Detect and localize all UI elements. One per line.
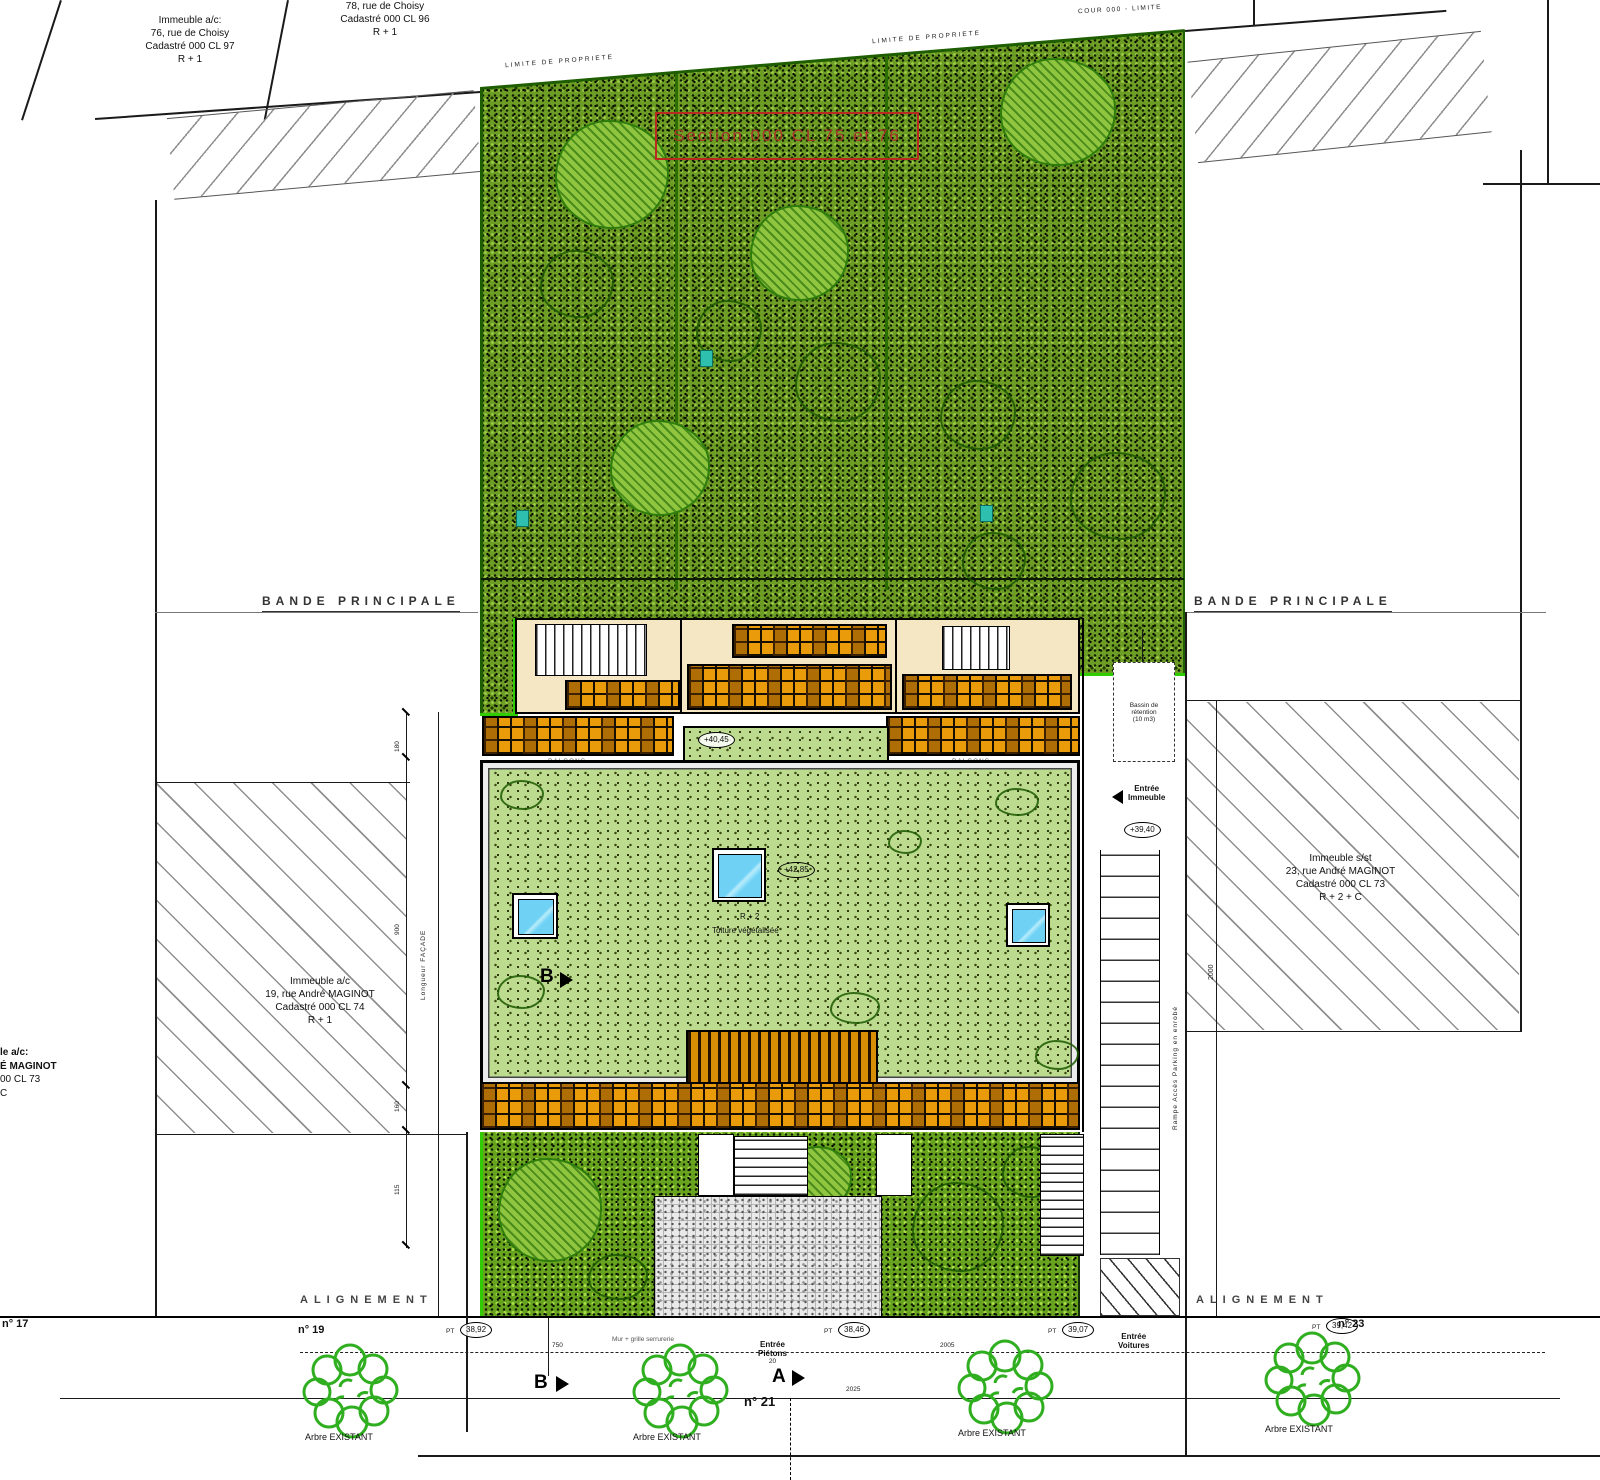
street-line	[418, 1455, 1600, 1457]
shrub-mark	[700, 350, 713, 367]
dim-value: 900	[394, 924, 401, 935]
planter-outline	[1035, 1040, 1079, 1070]
arbre-existant-label: Arbre EXISTANT	[633, 1432, 701, 1442]
hatched-strip	[167, 90, 481, 200]
cour-boundary-label: COUR 000 - LIMITE	[1078, 4, 1162, 15]
skylight-icon	[712, 848, 766, 902]
pergola-slats	[686, 1030, 878, 1084]
boundary-line	[155, 782, 410, 783]
arbre-existant-label: Arbre EXISTANT	[1265, 1424, 1333, 1434]
boundary-line	[155, 1134, 467, 1135]
alignement-right: ALIGNEMENT	[1196, 1294, 1329, 1306]
skylight-icon	[1006, 903, 1050, 947]
balcony-strip-lower	[480, 1082, 1080, 1130]
tree-crown	[750, 205, 849, 301]
boundary-line	[1483, 183, 1600, 185]
bande-line	[1186, 612, 1546, 613]
boundary-line	[1547, 0, 1549, 183]
tree-crown	[1000, 58, 1116, 166]
pt-label: PT	[1048, 1328, 1056, 1335]
alignement-left: ALIGNEMENT	[300, 1294, 433, 1306]
tree-outline	[540, 250, 614, 318]
dim-value: 115	[394, 1185, 401, 1195]
tree-outline	[940, 380, 1016, 450]
bande-principale-left: BANDE PRINCIPALE	[262, 594, 460, 612]
wall-line	[895, 620, 897, 712]
balcony-deck	[902, 674, 1072, 710]
tree-crown	[610, 420, 710, 516]
boundary-line	[1185, 10, 1446, 32]
dim-value: 2000	[1208, 964, 1215, 980]
bande-line	[155, 612, 478, 613]
level-marker: +42,85	[778, 862, 815, 878]
hatched-strip	[1187, 31, 1491, 163]
parcel-label-19-maginot: Immeuble a/c 19, rue André MAGINOT Cadas…	[225, 975, 415, 1027]
dim-value: 180	[394, 741, 401, 752]
dimension-chain	[438, 712, 439, 1318]
limite-propriete-label: LIMITE DE PROPRIETE	[505, 54, 614, 70]
balcony-deck	[565, 680, 680, 710]
parcel-label-23-maginot: Immeuble s/st 23, rue André MAGINOT Cada…	[1248, 852, 1433, 904]
level-marker: +40,45	[698, 732, 735, 748]
planter-outline	[888, 830, 922, 854]
pt-level: 39,07	[1062, 1322, 1094, 1338]
stair-block	[942, 626, 1010, 670]
ramp-stairs	[1040, 1134, 1084, 1256]
section-line-a	[790, 1398, 791, 1480]
tree-outline	[962, 532, 1026, 590]
boundary-line	[1185, 1031, 1520, 1032]
dimension-chain	[406, 712, 407, 1248]
arbre-existant-label: Arbre EXISTANT	[958, 1428, 1026, 1438]
pt-level: 38,92	[460, 1322, 492, 1338]
stair-block	[535, 624, 647, 676]
house-number-21: n° 21	[744, 1394, 775, 1409]
street-dim: 2005	[940, 1342, 954, 1349]
dim-value: 160	[394, 1101, 401, 1112]
house-number-17: n° 17	[2, 1318, 28, 1330]
building-east-wall	[1082, 618, 1084, 1132]
existing-tree-icon	[955, 1338, 1055, 1438]
property-line-west	[466, 1132, 468, 1432]
planter-outline	[500, 780, 544, 810]
parcel-hatch-left	[157, 783, 407, 1133]
side-path	[876, 1134, 912, 1196]
entree-immeuble-label: Entrée Immeuble	[1128, 784, 1165, 802]
pipe-line	[1142, 630, 1143, 662]
entrance-plaza	[654, 1196, 882, 1318]
parcel-label-far-left: le a/c: É MAGINOT 00 CL 73 C	[0, 1046, 57, 1100]
entrance-stairs	[734, 1136, 808, 1196]
section-marker-arrow	[792, 1370, 805, 1386]
planter-outline	[995, 788, 1039, 816]
property-edge	[480, 88, 483, 715]
cadastre-section-label: Section 000 CL 75 et 76	[673, 126, 901, 146]
planter-outline	[497, 975, 545, 1009]
street-dim: 750	[552, 1342, 563, 1349]
parcel-label-76-choisy: Immeuble a/c: 76, rue de Choisy Cadastré…	[95, 14, 285, 66]
pt-level: 38,46	[838, 1322, 870, 1338]
tree-crown	[555, 120, 669, 229]
boundary-line	[1253, 0, 1255, 26]
boundary-line	[1185, 700, 1520, 701]
balcony-deck	[732, 624, 887, 658]
shrub-mark	[516, 510, 529, 527]
roof-storey-label: R + 2	[740, 912, 759, 921]
pt-label: PT	[446, 1328, 454, 1335]
house-number-23: n° 23	[1338, 1318, 1364, 1330]
section-marker-arrow	[556, 1376, 569, 1392]
wall-line	[680, 620, 682, 712]
parking-ramp	[1100, 850, 1160, 1255]
pt-label: PT	[824, 1328, 832, 1335]
balcony-strip-right	[886, 716, 1080, 756]
house-number-19: n° 19	[298, 1324, 324, 1336]
arbre-existant-label: Arbre EXISTANT	[305, 1432, 373, 1442]
site-plan: Immeuble a/c: 76, rue de Choisy Cadastré…	[0, 0, 1600, 1480]
boundary-line	[1520, 150, 1522, 1032]
dimension-chain	[1216, 700, 1217, 1318]
garden-cross-line	[481, 578, 1184, 580]
existing-tree-icon	[630, 1342, 730, 1442]
tree-outline	[1070, 452, 1166, 540]
tree-outline	[588, 1254, 648, 1300]
retention-basin: Bassin de rétention (10 m3)	[1113, 662, 1175, 762]
skylight-icon	[512, 893, 558, 939]
street-dim: 2025	[846, 1386, 860, 1393]
planter-outline	[830, 992, 880, 1024]
section-marker-arrow	[560, 972, 573, 988]
limite-propriete-label: LIMITE DE PROPRIETE	[872, 30, 981, 46]
existing-tree-icon	[300, 1342, 400, 1442]
section-marker-b-top: B	[540, 966, 554, 988]
level-marker: +39,40	[1124, 822, 1161, 838]
section-line-b	[548, 1318, 549, 1376]
tree-crown	[498, 1158, 602, 1262]
parcel-label-78-choisy: 78, rue de Choisy Cadastré 000 CL 96 R +…	[300, 0, 470, 39]
balcony-deck	[687, 664, 892, 710]
entree-voitures-label: Entrée Voitures	[1118, 1332, 1149, 1350]
section-marker-b: B	[534, 1372, 548, 1394]
entree-pietons-label: Entrée Piétons 20	[758, 1340, 787, 1365]
ramp-turn	[1100, 1258, 1180, 1316]
tree-outline	[912, 1182, 1004, 1272]
side-path	[698, 1134, 734, 1196]
bande-principale-right: BANDE PRINCIPALE	[1194, 594, 1392, 612]
boundary-line	[155, 200, 157, 1318]
boundary-line	[21, 0, 61, 120]
shrub-mark	[980, 505, 993, 522]
cadastre-section-box: Section 000 CL 75 et 76	[655, 112, 919, 160]
balcony-strip-left	[482, 716, 674, 756]
existing-tree-icon	[1262, 1330, 1362, 1430]
entrance-arrow-icon	[1112, 790, 1123, 804]
roof-type-label: Toiture végétalisée	[712, 926, 779, 935]
building-top-band	[515, 618, 1080, 714]
facade-length-label: Longueur FAÇADE	[420, 930, 427, 1000]
ramp-label: Rampe Accès Parking en enrobé	[1172, 1006, 1179, 1130]
section-marker-a: A	[772, 1366, 786, 1388]
tree-outline	[795, 342, 881, 422]
